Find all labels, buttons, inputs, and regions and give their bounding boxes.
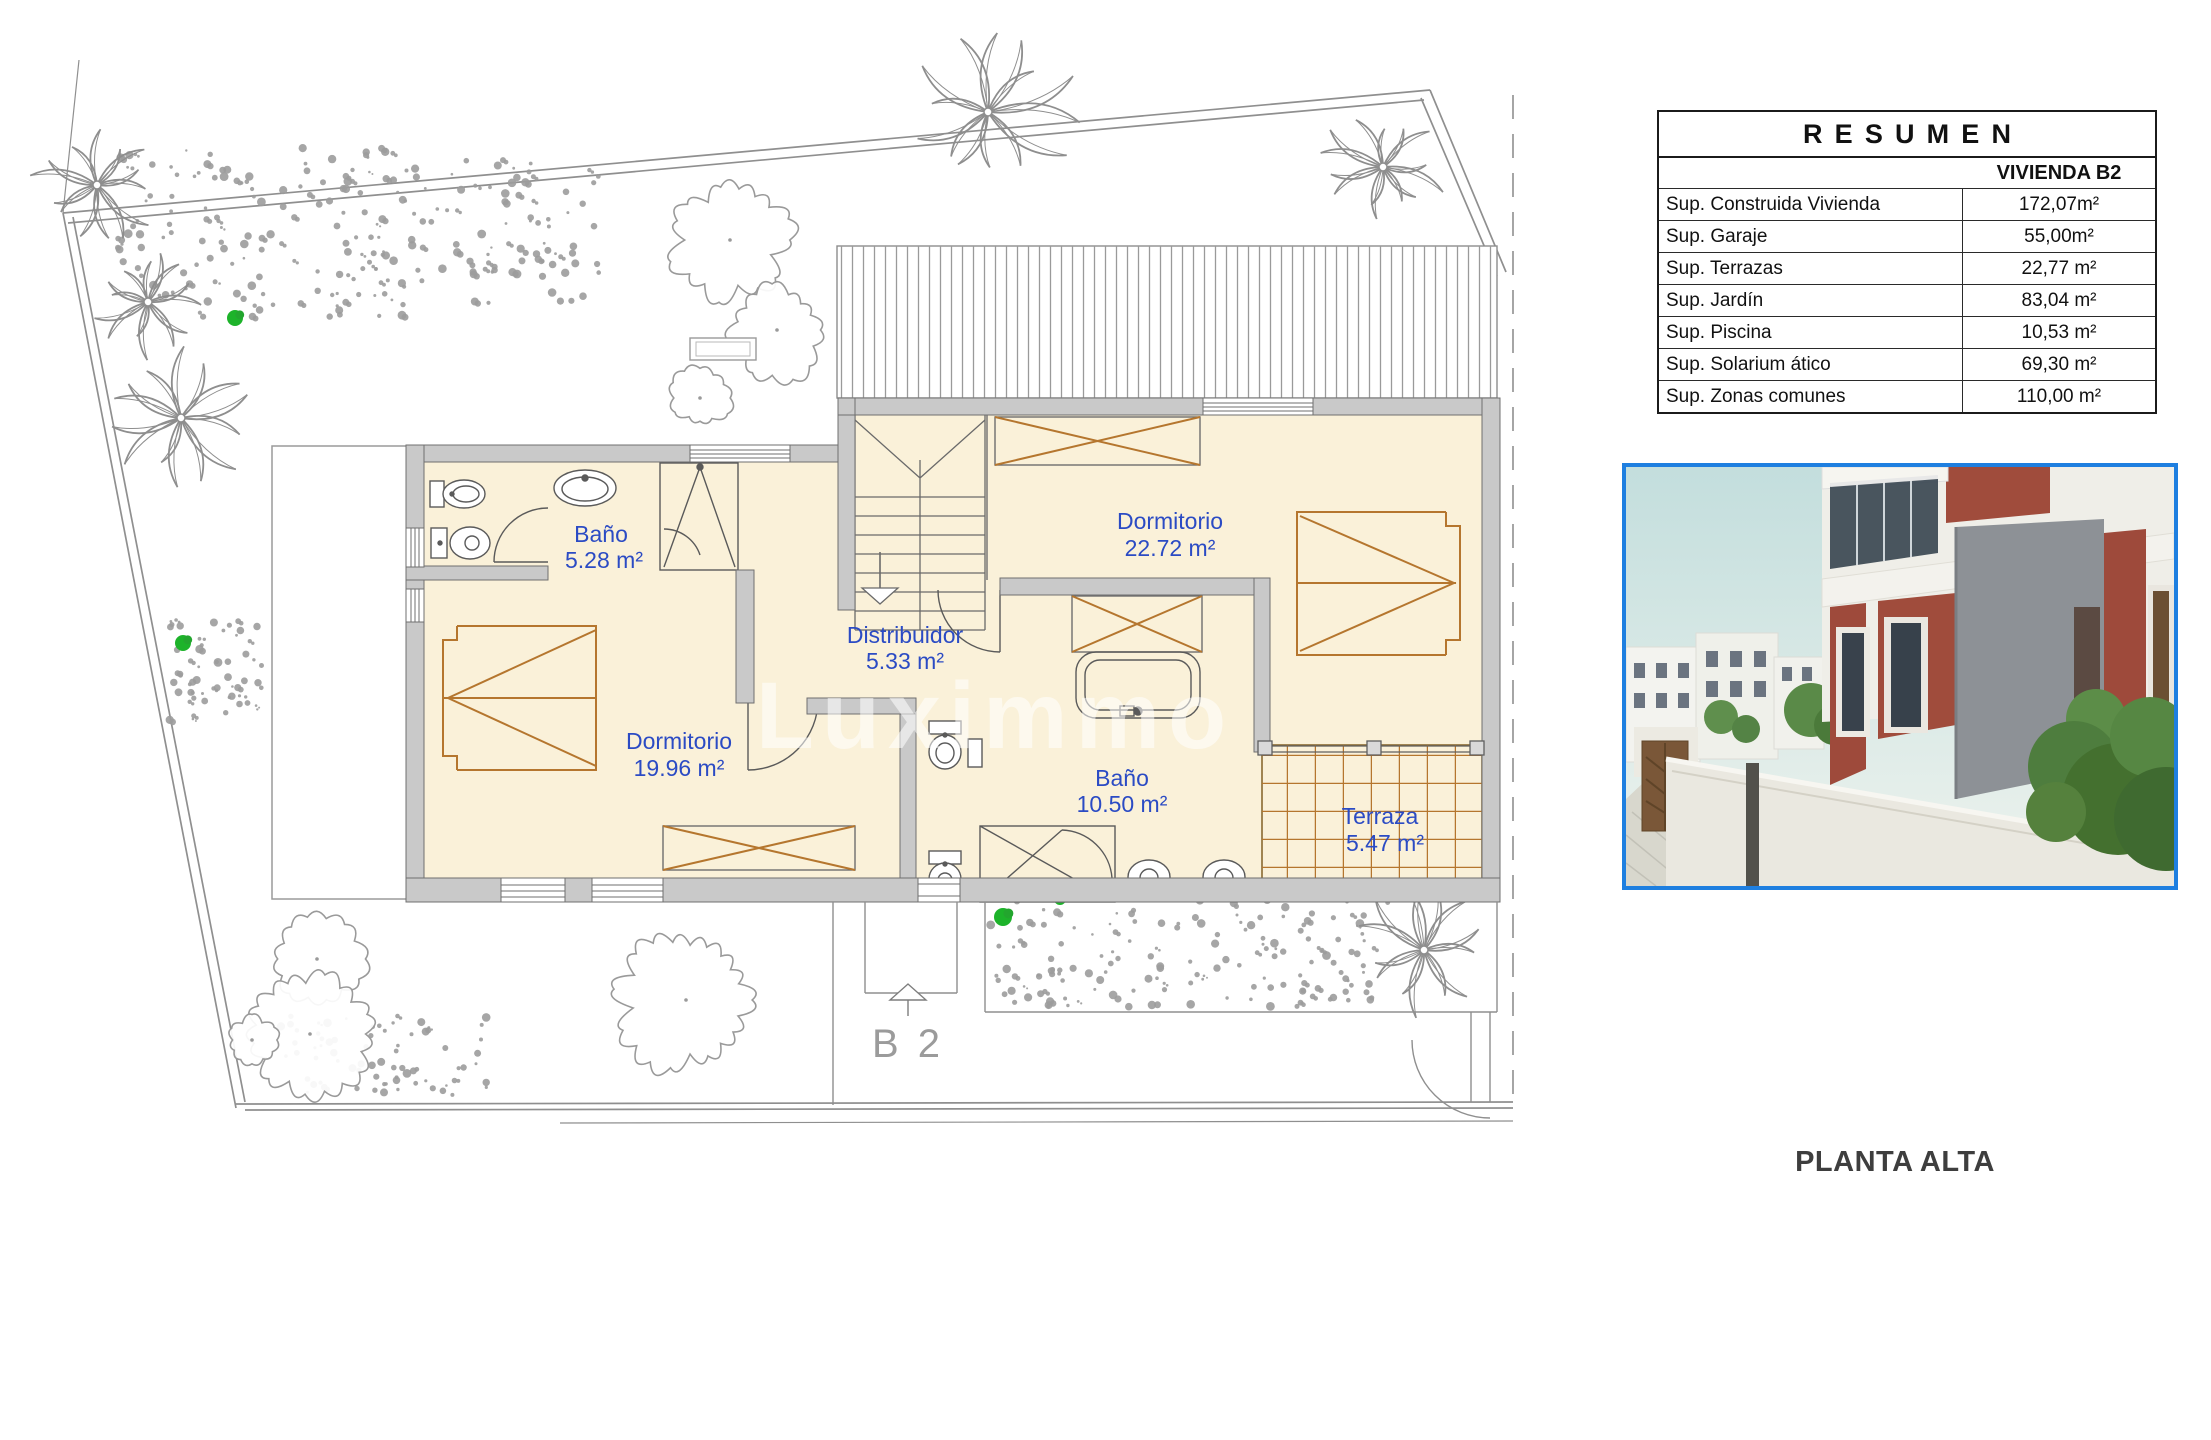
floor-title: PLANTA ALTA xyxy=(1745,1146,2045,1179)
room-label-distribuidor-name: Distribuidor xyxy=(847,622,964,648)
green-shrub xyxy=(175,635,192,651)
watermark: Luximmo xyxy=(756,663,1234,769)
roof-hatch xyxy=(837,246,1497,398)
room-label-bano2-area: 10.50 m² xyxy=(1077,791,1168,817)
bidet-1 xyxy=(430,480,485,508)
palm-plant xyxy=(918,33,1080,167)
entry-door-gap xyxy=(918,878,960,902)
screenshot-canvas: Baño 5.28 m² Distribuidor 5.33 m² Dormit… xyxy=(0,0,2211,1440)
table-row: Sup. Jardín 83,04 m² xyxy=(1659,285,2155,317)
table-row: Sup. Terrazas 22,77 m² xyxy=(1659,253,2155,285)
garden-tree xyxy=(725,282,824,385)
table-row: Sup. Zonas comunes 110,00 m² xyxy=(1659,381,2155,412)
garden-tree xyxy=(669,365,733,423)
palm-plant xyxy=(1321,120,1443,219)
property-photo xyxy=(1622,463,2178,890)
table-row: Sup. Solarium ático 69,30 m² xyxy=(1659,349,2155,381)
toilet-1 xyxy=(431,527,490,559)
table-row: Sup. Piscina 10,53 m² xyxy=(1659,317,2155,349)
palm-plant xyxy=(94,253,201,360)
palm-plant xyxy=(112,346,247,487)
palm-plant xyxy=(30,129,148,238)
table-row: Sup. Construida Vivienda 172,07m² xyxy=(1659,189,2155,221)
garden-gate-arc xyxy=(1412,1040,1490,1118)
room-label-bano1-name: Baño xyxy=(574,521,628,547)
resumen-title: RESUMEN xyxy=(1659,112,2155,158)
lower-roof-outline xyxy=(272,446,409,899)
room-label-bano1-area: 5.28 m² xyxy=(565,547,643,573)
room-label-dorm1-name: Dormitorio xyxy=(626,728,732,754)
wall-post xyxy=(1746,763,1759,886)
resumen-unit-header-row: VIVIENDA B2 xyxy=(1659,158,2155,189)
table-row: Sup. Garaje 55,00m² xyxy=(1659,221,2155,253)
sink-1 xyxy=(554,470,616,506)
room-label-terraza-area: 5.47 m² xyxy=(1346,830,1424,856)
green-shrub xyxy=(227,310,244,326)
entrance-arrow xyxy=(890,984,926,1000)
room-label-dorm1-area: 19.96 m² xyxy=(634,755,725,781)
room-label-dorm2-name: Dormitorio xyxy=(1117,508,1223,534)
resumen-table: RESUMEN VIVIENDA B2 Sup. Construida Vivi… xyxy=(1657,110,2157,414)
green-shrub xyxy=(994,908,1013,926)
property-photo-render xyxy=(1626,467,2174,886)
room-label-terraza-name: Terraza xyxy=(1342,803,1419,829)
resumen-unit-header: VIVIENDA B2 xyxy=(1963,158,2155,188)
skylight xyxy=(690,338,756,360)
unit-label: B 2 xyxy=(872,1022,944,1066)
garden-tree xyxy=(611,934,756,1076)
room-label-dorm2-area: 22.72 m² xyxy=(1125,535,1216,561)
